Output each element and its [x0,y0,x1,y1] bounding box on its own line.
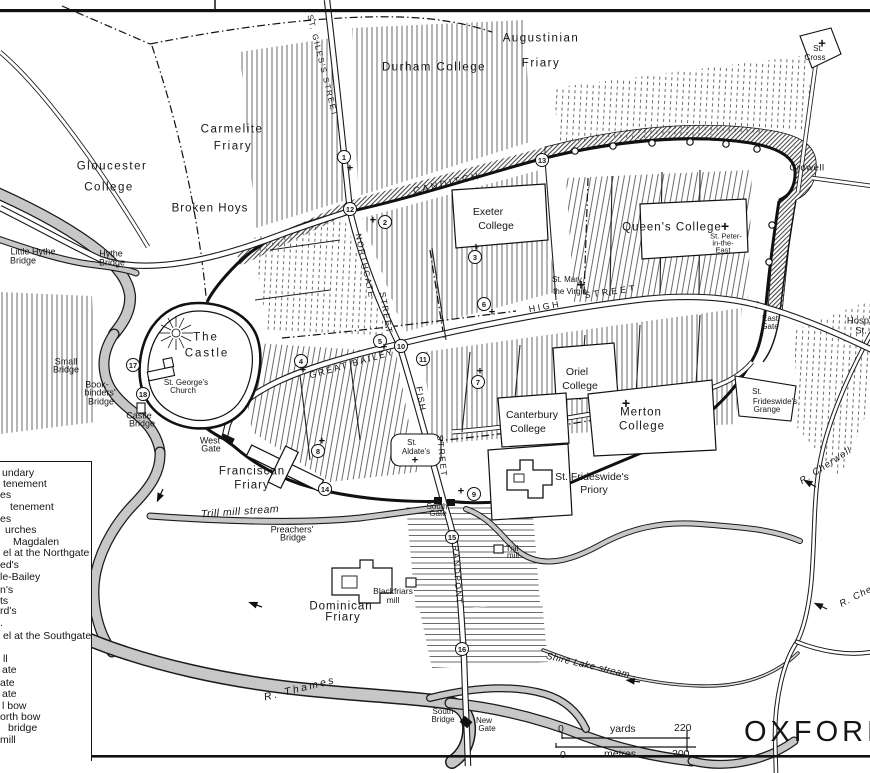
legend-item: ate [2,689,17,700]
legend-item: el at the Northgate [3,548,89,559]
legend-item: rd's [0,606,17,617]
legend-item: tenement [10,502,54,513]
scale-metres-label: metres [604,748,636,760]
map-canvas [0,0,870,773]
burgage-plots [0,20,870,668]
queens-college-block [640,199,748,259]
legend-item: mill [0,735,16,746]
legend-item: ed's [0,560,19,571]
legend-item: urches [5,525,37,536]
legend-item: . [0,618,3,629]
map-title: OXFORD c [744,716,870,749]
canterbury-college-block [498,393,569,447]
scale-bar: 0 yards 220 0 metres 200 [548,714,728,762]
scale-metres-start: 0 [560,749,566,761]
legend-item: es [0,490,11,501]
legend-item: ate [2,665,17,676]
historic-oxford-map-page: GloucesterCollegeCarmeliteFriaryBroken H… [0,0,870,773]
south-gate-mark-b [447,499,455,506]
legend-box: undarytenementestenementesurchesMagdalen… [0,461,92,761]
dominican-cloister [332,560,392,603]
scale-yards-end: 220 [674,722,692,734]
trill-mill-block [494,545,503,553]
st-aldates-box [391,434,441,466]
scale-metres-end: 200 [672,748,690,760]
legend-item: bridge [8,723,37,734]
frideswide-grange-block [735,376,796,421]
exeter-college-block [452,184,548,248]
merton-college-block [588,380,716,456]
castle-mill-block [137,403,145,413]
scale-yards-label: yards [610,723,636,735]
scale-yards-start: 0 [558,723,564,735]
blackfriars-mill-block [406,578,416,587]
castle-outer-wall [140,303,261,428]
north-gate-mark [344,205,351,213]
south-gate-mark-a [434,497,442,504]
legend-item: el at the Southgate [3,631,91,642]
legend-item: le-Bailey [0,572,40,583]
